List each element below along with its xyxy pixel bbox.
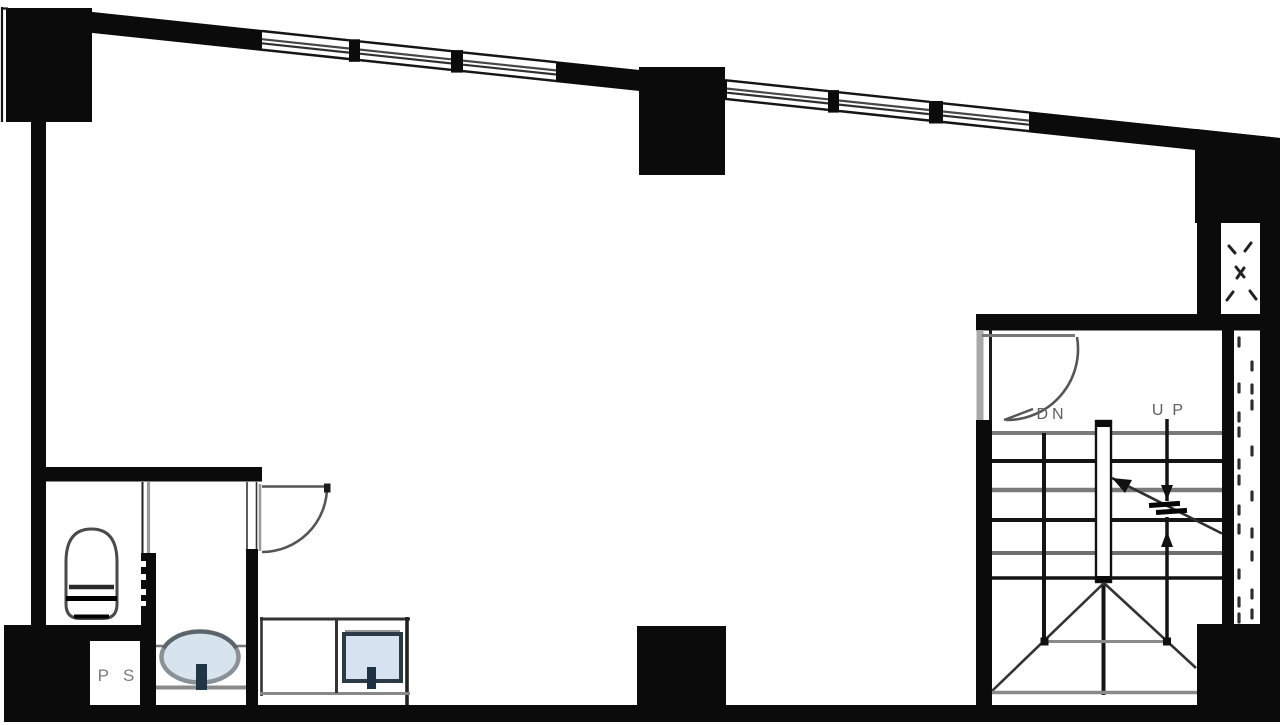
svg-text:PS: PS [98, 666, 149, 685]
svg-text:UP: UP [1152, 402, 1192, 419]
svg-text:DN: DN [1036, 406, 1067, 423]
